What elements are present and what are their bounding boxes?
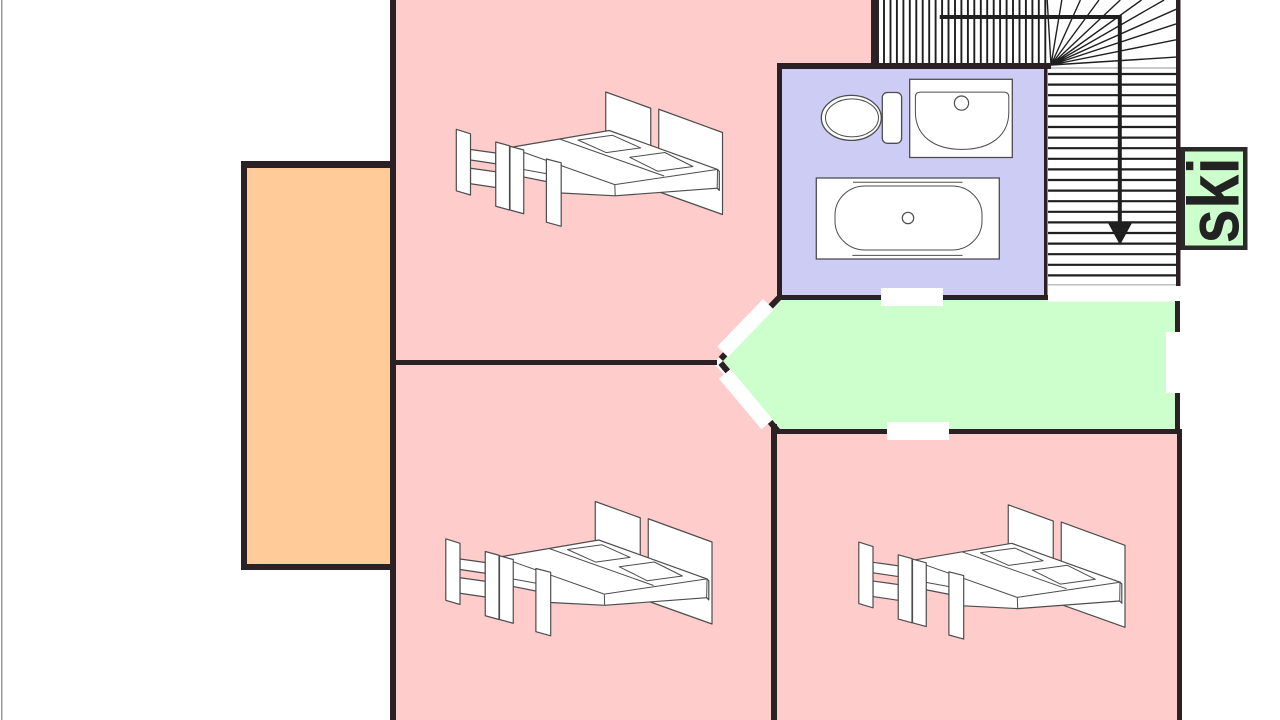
svg-text:ski: ski — [1174, 157, 1254, 243]
